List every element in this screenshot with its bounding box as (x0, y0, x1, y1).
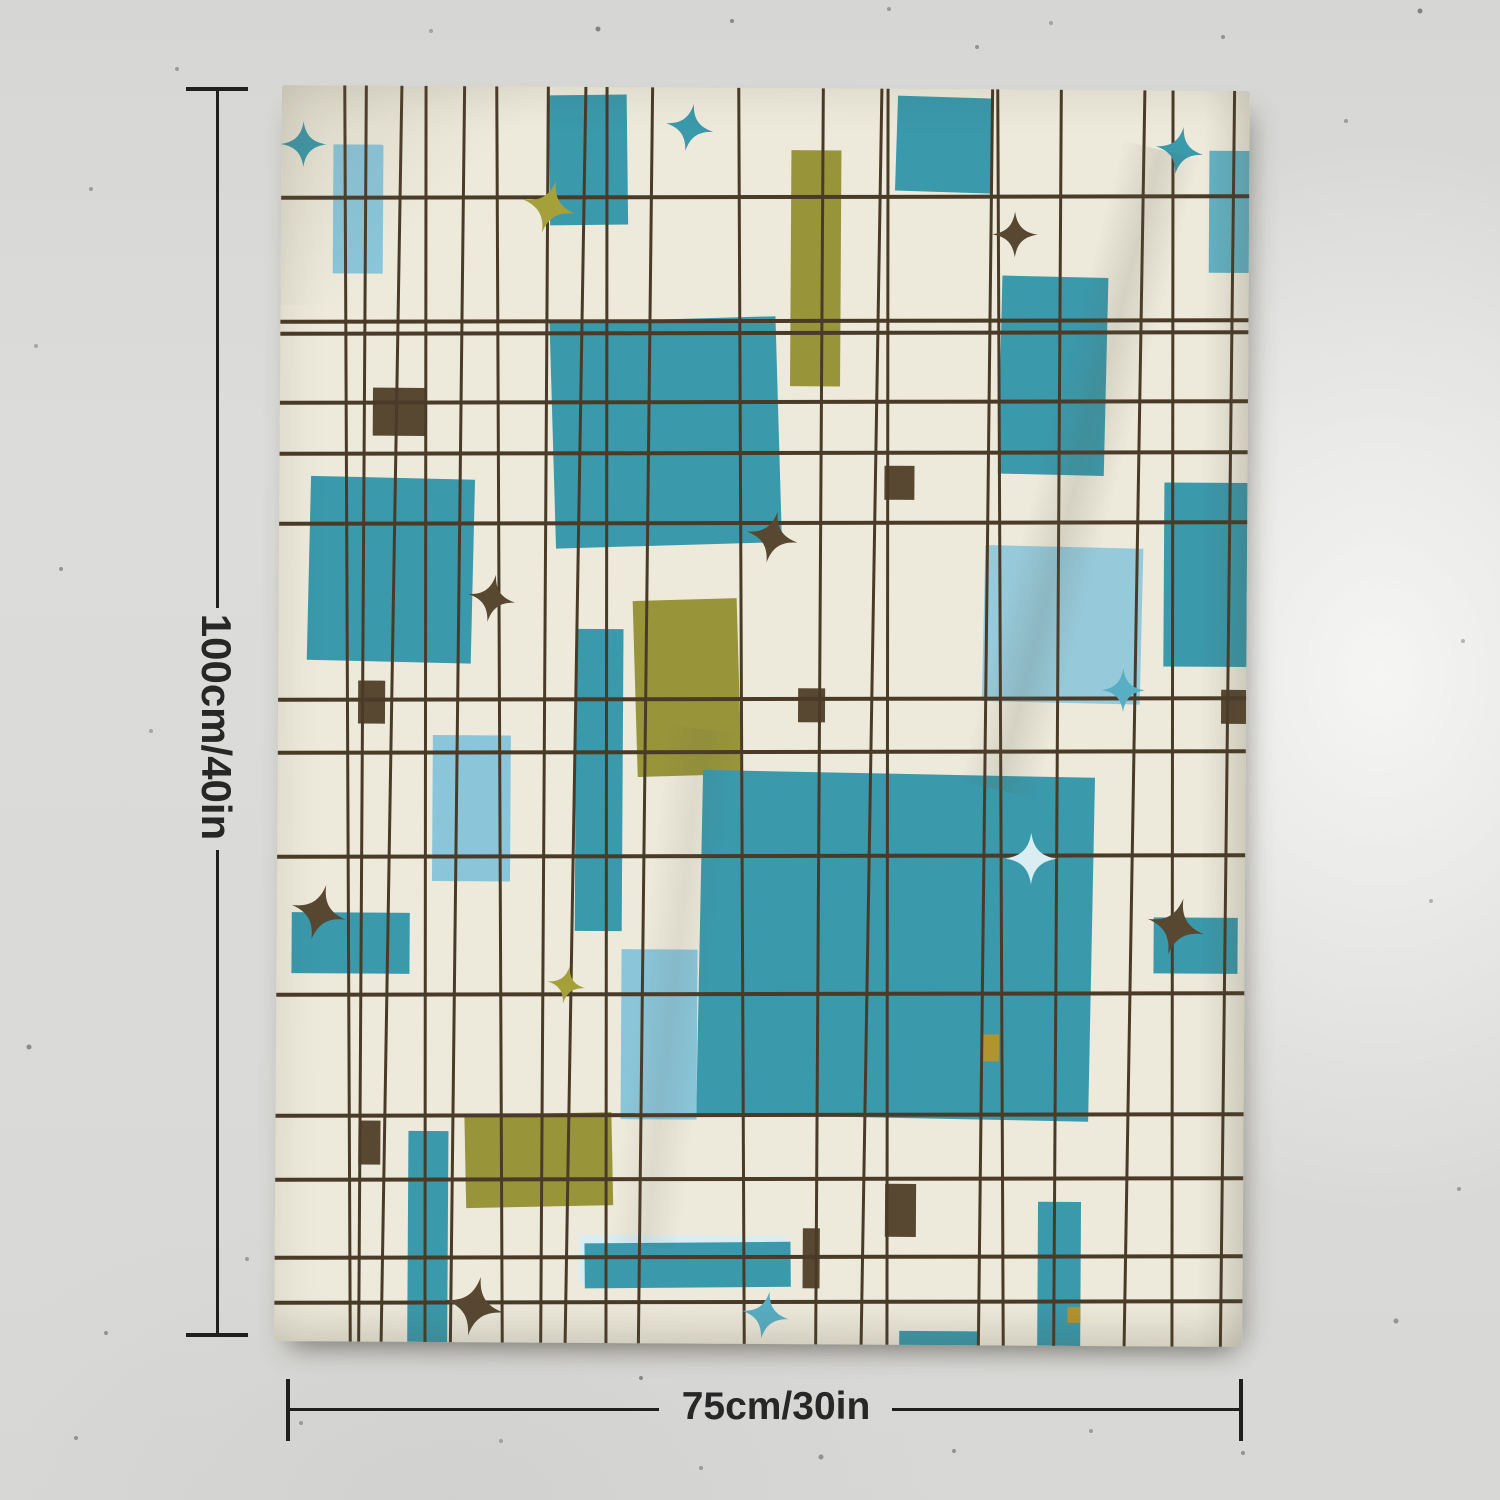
starburst-shape (1101, 668, 1145, 712)
pattern-square (373, 388, 426, 436)
pattern-rect (790, 150, 841, 386)
pattern-rect (621, 949, 698, 1119)
pattern-square (1221, 690, 1246, 724)
pattern-rect (550, 316, 782, 548)
pattern-rect (998, 276, 1109, 476)
width-dimension-cap-left (286, 1379, 290, 1441)
height-dimension-cap-top (186, 87, 248, 91)
pattern-rect (584, 1242, 790, 1289)
starburst-shape (662, 100, 718, 156)
grid-line-horizontal (274, 1254, 1250, 1260)
grid-line-vertical (885, 85, 889, 1347)
pattern-square (885, 1184, 916, 1237)
pattern-rect (1163, 482, 1250, 667)
grid-line-vertical (1170, 85, 1174, 1347)
pattern-rect (1209, 151, 1250, 273)
width-dimension-line (892, 1408, 1241, 1411)
wall-specks (0, 0, 2, 2)
starburst-shape (737, 1287, 793, 1343)
grid-line-horizontal (274, 1176, 1250, 1182)
grid-line-horizontal (274, 1112, 1250, 1118)
pattern-square (358, 1121, 380, 1165)
height-dimension-cap-bottom (186, 1333, 248, 1337)
starburst-shape (544, 963, 588, 1007)
width-dimension-line (288, 1408, 659, 1411)
starburst-shape (1152, 123, 1208, 179)
pattern-rect (1067, 1307, 1080, 1323)
starburst-shape (1005, 832, 1057, 884)
pattern-rect (333, 144, 384, 273)
height-dimension-line (216, 89, 219, 608)
grid-line-vertical (1052, 85, 1063, 1347)
grid-line-horizontal (274, 853, 1250, 859)
pattern-rect (575, 629, 624, 931)
starburst-shape (992, 211, 1038, 257)
starburst-shape (741, 506, 803, 568)
starburst-shape (280, 121, 326, 167)
grid-line-horizontal (274, 991, 1250, 997)
width-dimension-label: 75cm/30in (682, 1385, 871, 1429)
grid-line-vertical (1122, 85, 1146, 1347)
pattern-rect (696, 770, 1095, 1122)
grid-line-vertical (977, 85, 994, 1347)
grid-line-vertical (343, 85, 352, 1347)
height-dimension-label: 100cm/40in (192, 614, 240, 841)
starburst-shape (439, 1271, 510, 1342)
grid-line-horizontal (274, 194, 1250, 200)
pattern-rect (1037, 1202, 1081, 1346)
pattern-rect (464, 1112, 613, 1208)
grid-line-vertical (996, 85, 1005, 1347)
grid-line-vertical (449, 85, 466, 1347)
tapestry-pattern (274, 85, 1250, 1347)
pattern-rect (895, 96, 994, 194)
starburst-shape (464, 570, 520, 626)
pattern-rect (983, 1034, 999, 1061)
pattern-rect (899, 1331, 979, 1347)
tapestry (274, 85, 1250, 1347)
product-photo: 100cm/40in 75cm/30in (0, 0, 1500, 1500)
grid-line-vertical (859, 85, 883, 1347)
width-dimension-cap-right (1239, 1379, 1243, 1441)
grid-line-horizontal (274, 749, 1250, 755)
height-dimension-line (216, 850, 219, 1337)
